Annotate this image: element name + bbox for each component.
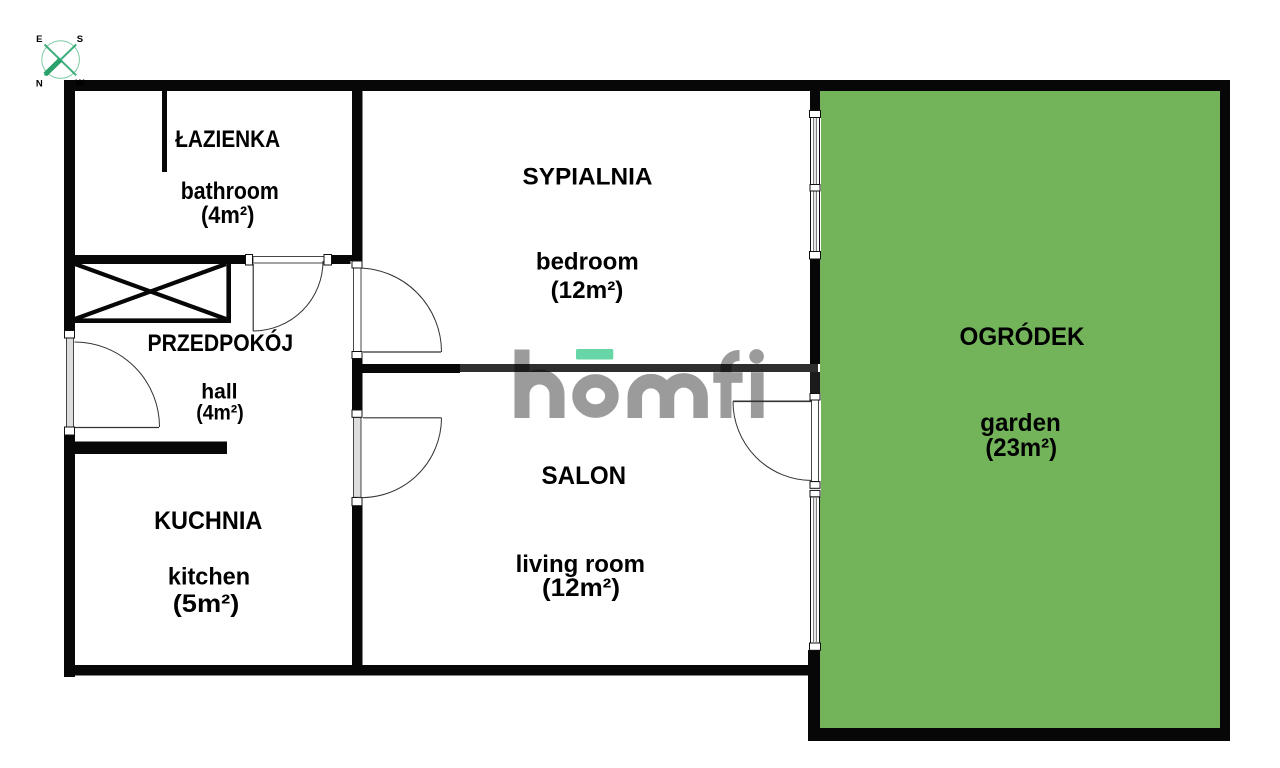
svg-text:(23m²): (23m²) <box>985 434 1057 462</box>
svg-text:S: S <box>77 34 83 45</box>
svg-text:N: N <box>36 78 43 89</box>
svg-text:(12m²): (12m²) <box>551 277 624 304</box>
svg-text:bedroom: bedroom <box>536 249 639 276</box>
svg-text:SALON: SALON <box>542 462 627 490</box>
svg-text:E: E <box>36 34 42 45</box>
svg-text:PRZEDPOKÓJ: PRZEDPOKÓJ <box>148 329 294 357</box>
svg-text:(4m²): (4m²) <box>201 202 255 229</box>
svg-text:OGRÓDEK: OGRÓDEK <box>960 321 1085 351</box>
svg-text:SYPIALNIA: SYPIALNIA <box>523 164 653 191</box>
svg-text:(4m²): (4m²) <box>196 402 244 425</box>
svg-text:W: W <box>75 78 84 89</box>
svg-text:hall: hall <box>201 381 237 404</box>
svg-text:KUCHNIA: KUCHNIA <box>154 507 262 535</box>
svg-text:garden: garden <box>980 409 1061 437</box>
svg-text:(5m²): (5m²) <box>173 590 240 618</box>
svg-text:(12m²): (12m²) <box>542 574 620 602</box>
svg-text:kitchen: kitchen <box>168 564 250 591</box>
svg-text:ŁAZIENKA: ŁAZIENKA <box>175 126 280 153</box>
